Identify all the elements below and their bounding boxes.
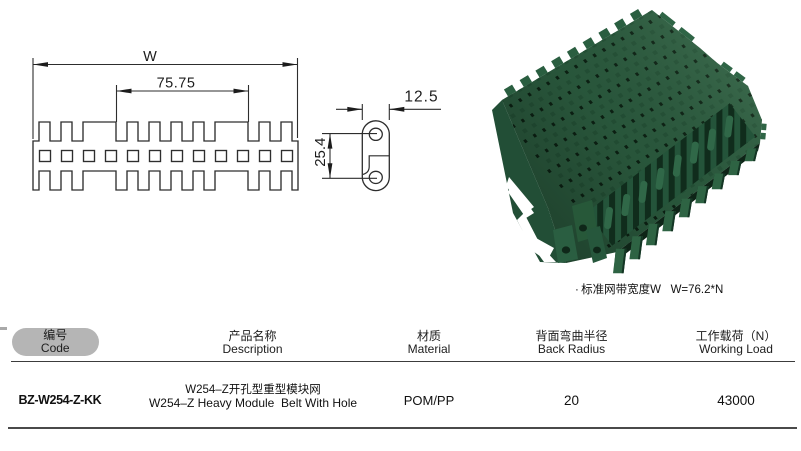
svg-text:75.75: 75.75 (157, 76, 196, 92)
svg-text:25.4: 25.4 (312, 138, 329, 167)
svg-text:12.5: 12.5 (404, 89, 438, 106)
svg-text:W: W (143, 49, 157, 65)
